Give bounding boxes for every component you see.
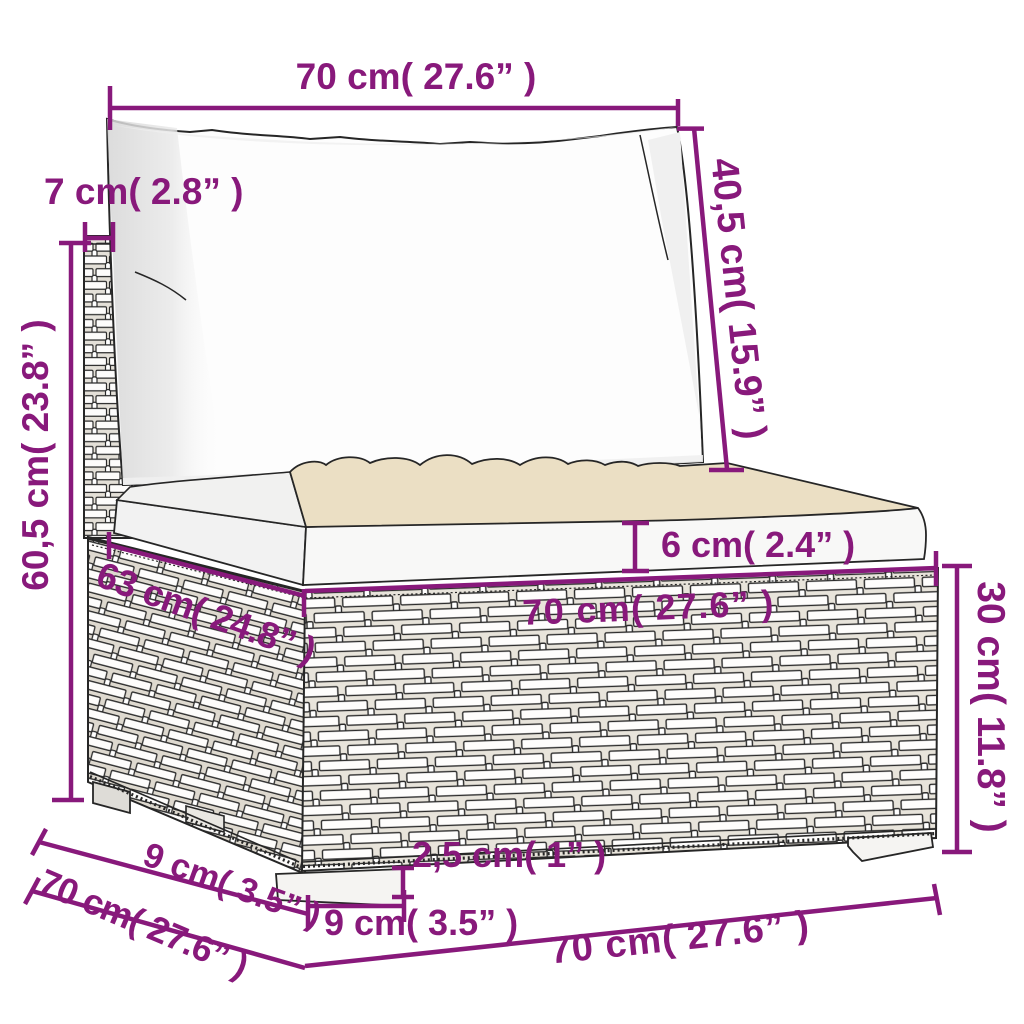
svg-text:70 cm( 27.6” ): 70 cm( 27.6” ) <box>296 56 537 97</box>
svg-text:2,5 cm( 1” ): 2,5 cm( 1” ) <box>412 834 606 875</box>
svg-text:30 cm( 11.8” ): 30 cm( 11.8” ) <box>969 581 1012 832</box>
svg-text:60,5 cm( 23.8” ): 60,5 cm( 23.8” ) <box>15 319 56 590</box>
svg-text:6 cm( 2.4” ): 6 cm( 2.4” ) <box>661 524 855 565</box>
svg-text:9 cm( 3.5” ): 9 cm( 3.5” ) <box>324 902 518 943</box>
svg-text:7 cm( 2.8” ): 7 cm( 2.8” ) <box>44 171 243 212</box>
